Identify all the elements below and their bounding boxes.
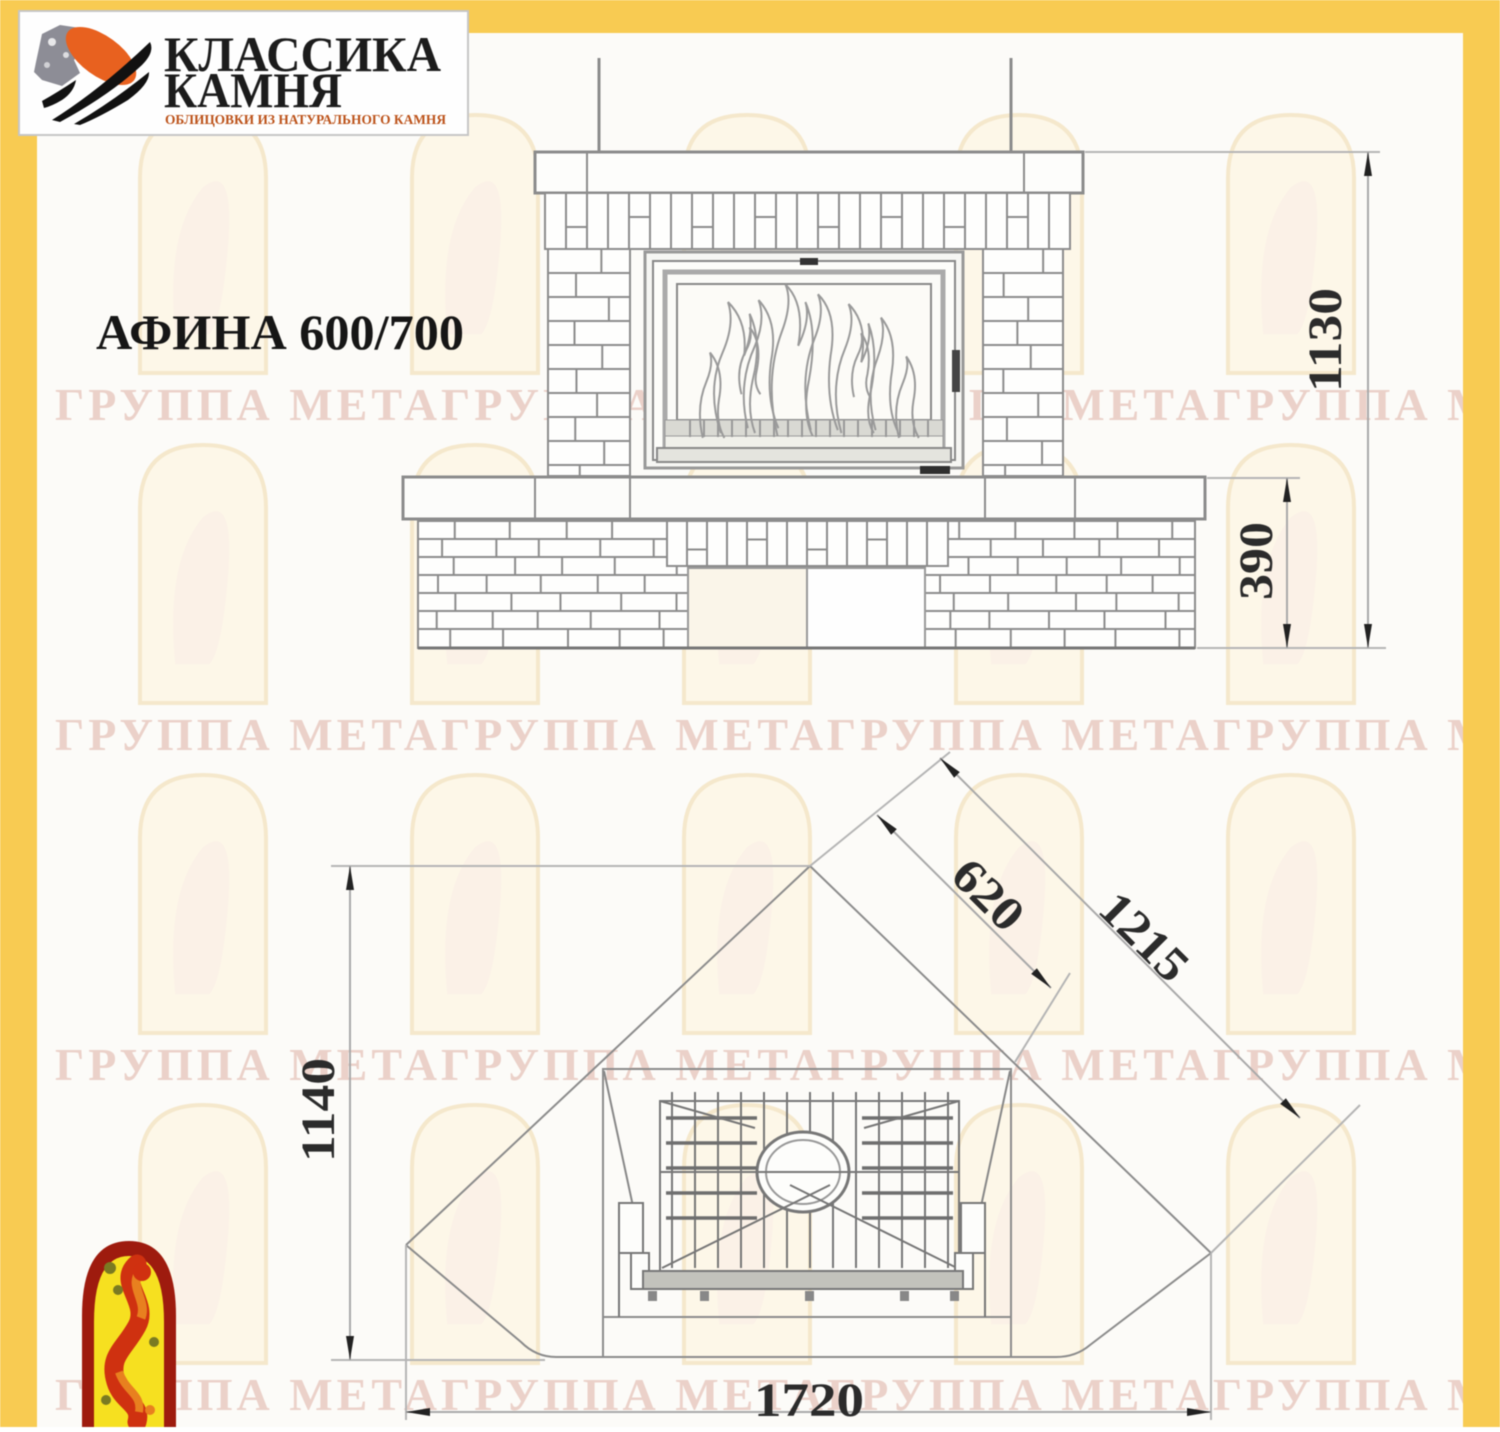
svg-text:390: 390 [1230,522,1283,600]
svg-text:1720: 1720 [754,1374,864,1427]
svg-text:ГРУППА МЕТАГРУППА МЕТАГРУППА М: ГРУППА МЕТАГРУППА МЕТАГРУППА МЕТАГРУППА … [55,709,1500,760]
svg-text:АФИНА 600/700: АФИНА 600/700 [96,304,464,360]
svg-text:1130: 1130 [1299,288,1352,392]
svg-text:КАМНЯ: КАМНЯ [164,62,342,118]
svg-text:1140: 1140 [292,1058,345,1162]
svg-text:ГРУППА МЕТАГРУППА МЕТАГРУППА М: ГРУППА МЕТАГРУППА МЕТАГРУППА МЕТАГРУППА … [55,1039,1500,1090]
svg-text:ОБЛИЦОВКИ ИЗ НАТУРАЛЬНОГО КАМН: ОБЛИЦОВКИ ИЗ НАТУРАЛЬНОГО КАМНЯ [165,113,446,128]
